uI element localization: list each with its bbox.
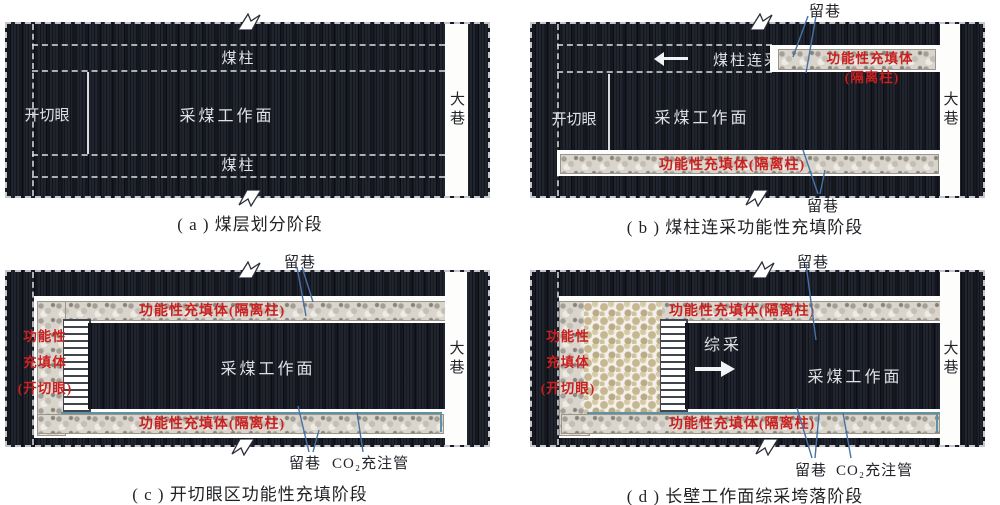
main-roadway-strip: 大巷	[445, 24, 468, 196]
fill-top-label: 功能性充填体(隔离柱)	[612, 300, 872, 320]
main-roadway-strip: 大巷	[445, 272, 467, 445]
pillar-mining-arrow-icon	[664, 57, 688, 60]
seam-break-icon	[750, 13, 776, 30]
co2-pipe-line-end	[440, 412, 442, 432]
panel-a: 煤柱 煤柱 采煤工作面 开切眼 大巷	[5, 22, 490, 198]
seam-break-icon	[235, 190, 261, 207]
seam-break-icon	[228, 439, 254, 456]
hydraulic-supports	[660, 319, 688, 414]
fill-top-label-line1: 功能性充填体	[800, 47, 940, 67]
co2-pipe-line-end	[936, 412, 938, 432]
mechanized-mining-label: 综采	[693, 331, 753, 355]
fill-bottom-label: 功能性充填体(隔离柱)	[612, 413, 872, 433]
seam-break-icon	[238, 261, 264, 278]
panel-d-caption: ( d ) 长壁工作面综采垮落阶段	[540, 482, 950, 505]
fill-open-cut-label: 功能性 充填体 (开切眼)	[532, 324, 604, 402]
main-roadway-strip: 大巷	[940, 272, 960, 445]
co2-pipe-label: CO₂充注管	[836, 459, 966, 480]
panel-a-dashed-line-1	[32, 44, 445, 46]
seam-break-icon	[752, 261, 778, 278]
seam-break-icon	[742, 190, 768, 207]
open-cut-label: 开切眼	[9, 104, 85, 125]
open-cut-line	[608, 74, 610, 152]
retained-roadway-top-label: 留巷	[800, 0, 850, 21]
retained-roadway-bottom-label: 留巷	[282, 452, 328, 473]
fill-open-cut-line1: 功能性	[7, 324, 83, 350]
mining-face-label: 采煤工作面	[168, 355, 368, 379]
fill-top-label: 功能性充填体(隔离柱)	[92, 300, 332, 320]
fill-open-cut-line1: 功能性	[532, 324, 604, 350]
fill-bottom-label: 功能性充填体(隔离柱)	[582, 154, 882, 174]
fill-open-cut-line3: (开切眼)	[7, 376, 83, 402]
mining-face-block: 采煤工作面	[88, 323, 445, 409]
mining-face-block: 综采 采煤工作面	[685, 323, 940, 409]
fill-open-cut-line2: 充填体	[532, 350, 604, 376]
retained-roadway-top-label: 留巷	[275, 251, 325, 272]
main-roadway-label: 大巷	[446, 91, 467, 129]
main-roadway-label: 大巷	[446, 340, 467, 378]
mining-face-label: 采煤工作面	[107, 102, 347, 126]
mining-direction-arrow-icon	[695, 367, 721, 371]
fill-open-cut-line3: (开切眼)	[532, 376, 604, 402]
fill-open-cut-label: 功能性 充填体 (开切眼)	[7, 324, 83, 402]
panel-c: 采煤工作面 功能性充填体(隔离柱) 功能性充填体(隔离柱) 功能性 充填体 (开…	[5, 270, 490, 447]
panel-a-dashed-line-4	[32, 176, 445, 178]
fill-top-label-line2: (隔离柱)	[817, 66, 927, 86]
coal-pillar-bottom-label: 煤柱	[32, 154, 445, 175]
coal-pillar-top-label: 煤柱	[32, 47, 445, 68]
panel-b-dashed-line-2	[557, 71, 772, 73]
fill-bottom-label: 功能性充填体(隔离柱)	[92, 413, 332, 433]
mining-face-label: 采煤工作面	[622, 104, 782, 128]
seam-break-icon	[238, 13, 264, 30]
main-roadway-label: 大巷	[940, 91, 961, 129]
main-roadway-strip: 大巷	[940, 24, 960, 196]
open-cut-label: 开切眼	[536, 108, 612, 129]
panel-b: 煤柱连采 功能性充填体 (隔离柱) 开切眼 采煤工作面 功能性充填体(隔离柱) …	[530, 22, 985, 198]
retained-roadway-top-label: 留巷	[788, 251, 838, 272]
panel-a-dashed-line-2	[32, 70, 445, 72]
retained-roadway-bottom-label: 留巷	[788, 459, 834, 480]
open-cut-line	[87, 72, 89, 154]
co2-pipe-label: CO₂充注管	[332, 452, 462, 473]
seam-break-icon	[752, 439, 778, 456]
mining-face-label: 采煤工作面	[775, 363, 935, 387]
panel-c-caption: ( c ) 开切眼区功能性充填阶段	[55, 480, 445, 505]
panel-a-caption: ( a ) 煤层划分阶段	[55, 210, 445, 235]
panel-b-dashed-line-1	[557, 44, 772, 46]
fill-open-cut-line2: 充填体	[7, 350, 83, 376]
panel-d: 综采 采煤工作面 功能性充填体(隔离柱) 功能性充填体(隔离柱) 功能性 充填体…	[530, 270, 985, 447]
main-roadway-label: 大巷	[940, 340, 961, 378]
panel-b-caption: ( b ) 煤柱连采功能性充填阶段	[540, 213, 950, 238]
figure-canvas: 煤柱 煤柱 采煤工作面 开切眼 大巷 ( a ) 煤层划分阶段 煤柱连采 功能性…	[0, 0, 1000, 505]
